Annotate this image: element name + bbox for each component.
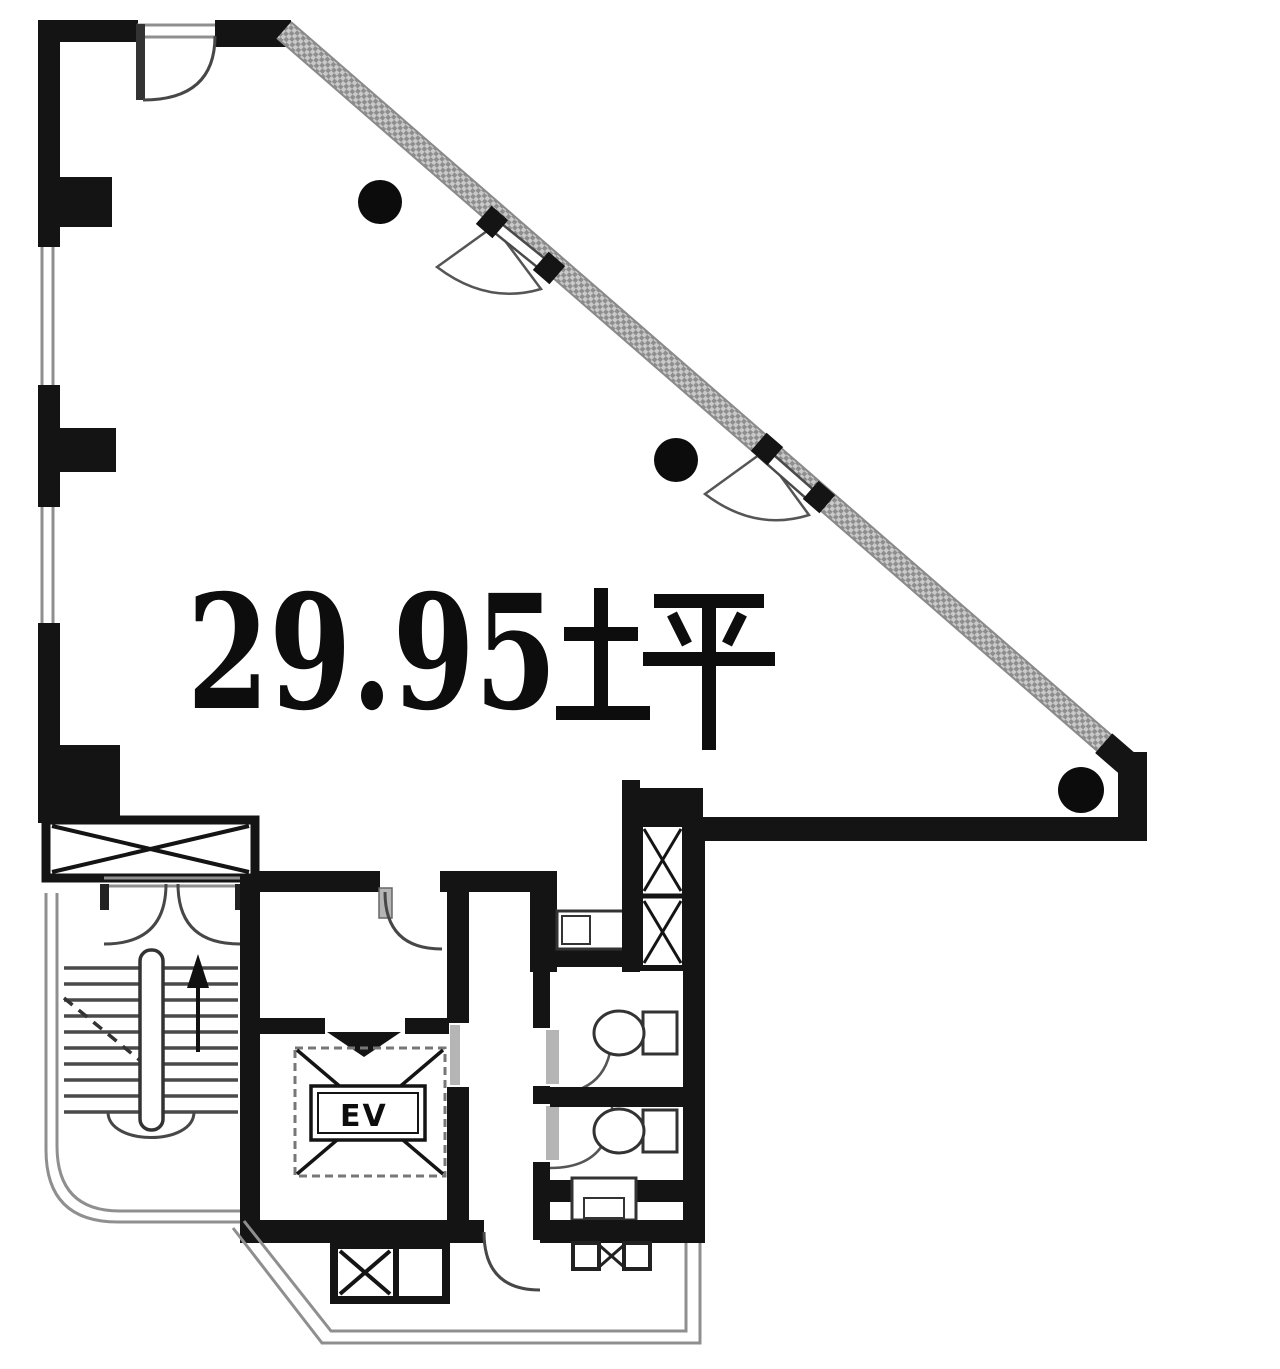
toilet-bottom-wall: [635, 1180, 683, 1202]
stair-ev-wall: [240, 877, 260, 1243]
stall-partition-wall: [550, 1087, 683, 1107]
left-wall-pillar: [38, 428, 116, 472]
core-right-wall: [683, 817, 705, 1243]
ev-hall-top-wall: [255, 871, 380, 892]
bowtie-fixture-box: [624, 1243, 650, 1269]
service-core: EV: [46, 780, 705, 1290]
stair-up-arrow: [187, 954, 209, 988]
porch-door-arc: [484, 1232, 540, 1290]
top-door-swing-arc: [143, 36, 215, 100]
stair-handrail: [140, 950, 163, 1130]
column-dot: [358, 180, 402, 224]
floor-plan-drawing: 29.95: [0, 0, 1280, 1369]
column-dot: [1058, 767, 1104, 813]
toilet-bowl: [594, 1109, 644, 1153]
door-leaf: [100, 884, 109, 910]
door-swing-arc: [178, 884, 240, 944]
core-bottom-wall: [540, 1220, 705, 1243]
column-dot: [654, 438, 698, 482]
left-wall-pillar: [38, 745, 120, 823]
tsubo-stroke: [672, 614, 687, 644]
stair-break-line: [64, 998, 142, 1062]
core-bottom-wall: [240, 1220, 476, 1243]
bottom-wall-main-room: [700, 817, 1147, 841]
utility-fixture-basin: [584, 1198, 624, 1218]
door-swing-arc: [104, 884, 166, 944]
door-leaf: [450, 1025, 460, 1085]
ev-room-top-wall: [260, 1018, 325, 1034]
door-leaf: [546, 1030, 559, 1084]
toilet-tank: [643, 1110, 677, 1152]
top-wall-right: [215, 20, 291, 47]
tsubo-unit-glyph: [556, 588, 775, 750]
toilet-bottom-wall: [533, 1180, 575, 1202]
diagonal-door-lower: [705, 433, 835, 521]
elevator-label: EV: [340, 1099, 388, 1134]
toilet-tank: [643, 1012, 677, 1054]
bowtie-fixture-box: [573, 1243, 599, 1269]
room-area-number: 29.95: [187, 561, 557, 746]
stair-double-door: [100, 878, 244, 944]
elevator-door-indicator: [327, 1032, 401, 1057]
floor-plan-page: 29.95: [0, 0, 1280, 1369]
ev-hall-door-arc: [385, 892, 442, 949]
washbasin-sink: [562, 916, 590, 944]
door-leaf: [546, 1106, 559, 1160]
ev-room-top-wall: [405, 1018, 449, 1034]
left-wall-segment: [38, 623, 60, 747]
top-door-leaf: [136, 24, 145, 100]
tsubo-stroke: [727, 614, 742, 644]
left-wall-pillar: [38, 177, 112, 227]
elevator-room: EV: [260, 1018, 449, 1176]
toilet-bowl: [594, 1011, 644, 1055]
room-area-label: 29.95: [187, 561, 775, 750]
